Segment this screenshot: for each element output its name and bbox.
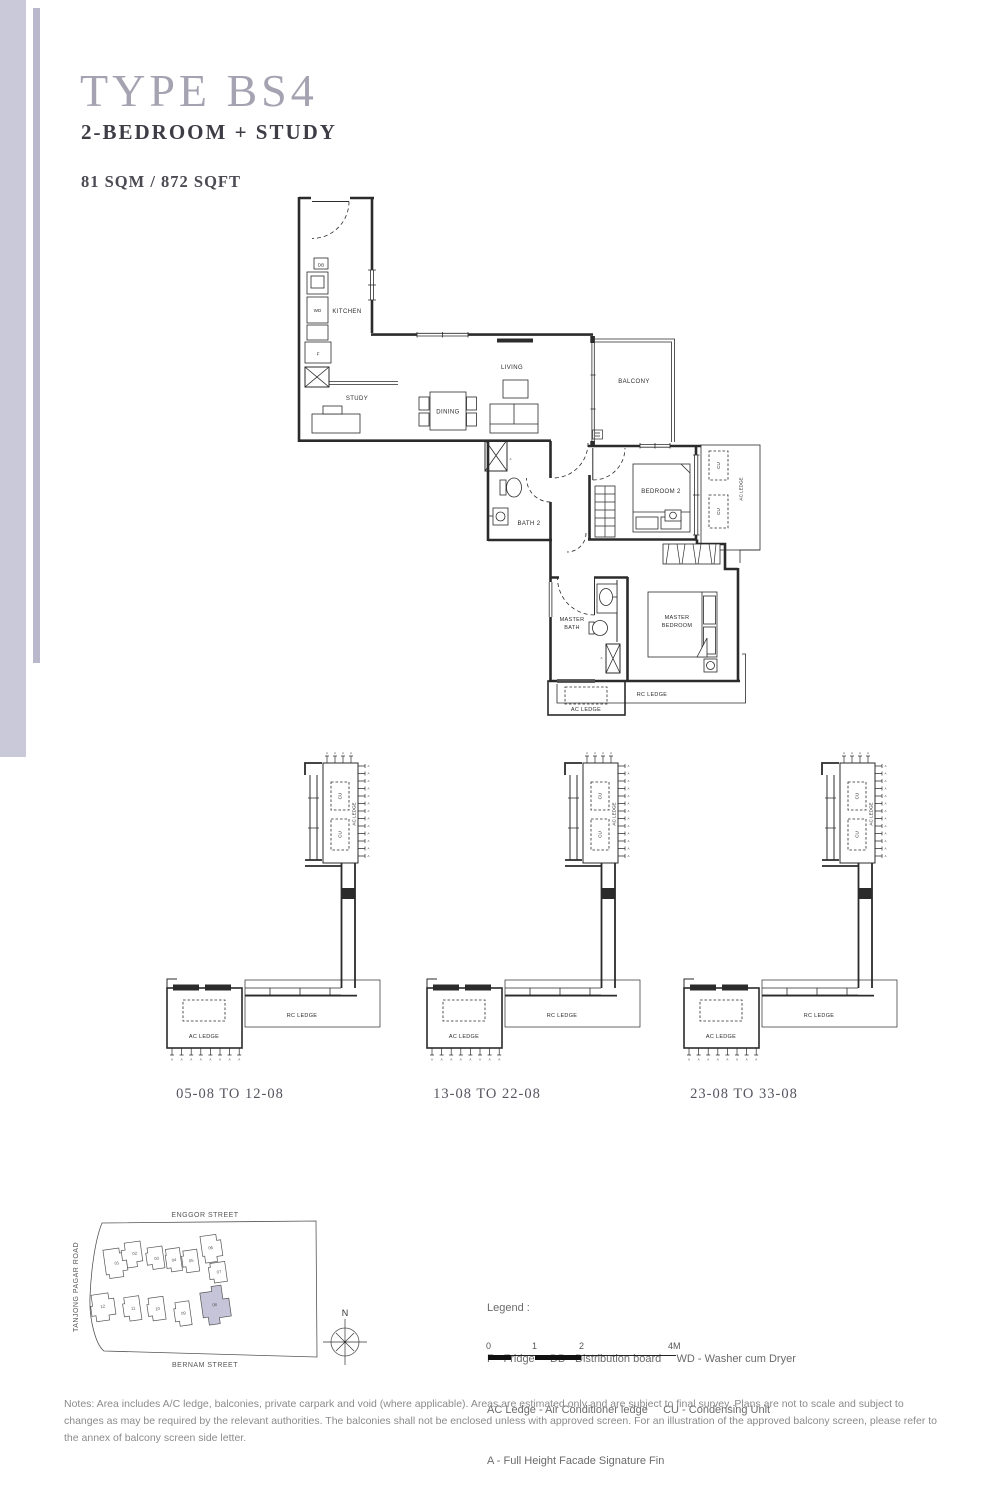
room-label-living: LIVING bbox=[501, 365, 523, 371]
stack-caption-2: 13-08 TO 22-08 bbox=[407, 1086, 567, 1103]
cu-label: CU bbox=[338, 793, 343, 800]
room-label-bath2: BATH 2 bbox=[518, 521, 541, 527]
scale-tick: 1 bbox=[532, 1341, 537, 1351]
scale-tick: 0 bbox=[486, 1341, 491, 1351]
room-label-balcony: BALCONY bbox=[618, 379, 649, 385]
shaft-icon bbox=[305, 367, 329, 387]
toilet-icon bbox=[500, 478, 522, 497]
master-bedroom-furniture bbox=[648, 544, 720, 672]
rc-ledge-label: RC LEDGE bbox=[637, 692, 668, 698]
room-label-study: STUDY bbox=[346, 396, 368, 402]
scale-tick: 4M bbox=[668, 1341, 681, 1351]
cu-label: CU bbox=[716, 508, 721, 515]
db-label: DB bbox=[318, 263, 324, 268]
compass-icon: N bbox=[323, 1308, 367, 1365]
kitchen-appliances bbox=[305, 258, 398, 387]
coffee-table-icon bbox=[503, 380, 528, 398]
stack-caption-1: 05-08 TO 12-08 bbox=[150, 1086, 310, 1103]
room-label-kitchen: KITCHEN bbox=[332, 309, 361, 315]
stack-caption-3: 23-08 TO 33-08 bbox=[664, 1086, 824, 1103]
site-map: 01 02 03 04 05 06 07 12 11 10 09 08 ENGG… bbox=[60, 1195, 380, 1380]
wardrobe-icon bbox=[595, 486, 615, 537]
ac-ledge-label: AC LEDGE bbox=[352, 802, 357, 825]
scale-bar-line bbox=[488, 1355, 676, 1361]
room-label-master-bath-1: MASTER bbox=[560, 617, 585, 623]
stack-diagram-1: A A A CU CU AC LEDGE bbox=[165, 748, 380, 1066]
side-table-icon bbox=[665, 510, 681, 521]
rc-ledge-label: RC LEDGE bbox=[287, 1013, 318, 1019]
wd-label: WD bbox=[314, 308, 322, 313]
unit-type-title: TYPE BS4 bbox=[80, 64, 318, 117]
bath2-fixtures: A bbox=[485, 440, 522, 525]
shaft-icon bbox=[606, 644, 620, 673]
room-label-master-bedroom-1: MASTER bbox=[665, 615, 690, 621]
fin-marker-label: A bbox=[600, 656, 602, 660]
ac-ledge-label: AC LEDGE bbox=[189, 1034, 219, 1040]
building-footprints: 01 02 03 04 05 06 07 12 11 10 09 08 bbox=[83, 1230, 234, 1341]
room-label-master-bedroom-2: BEDROOM bbox=[662, 623, 693, 629]
scale-bar-segment bbox=[488, 1355, 511, 1360]
cu-label: CU bbox=[716, 462, 721, 469]
study-desk-icon bbox=[312, 406, 360, 433]
floor-plan: A CU CU AC LEDGE bbox=[295, 192, 765, 737]
basin-icon bbox=[489, 508, 508, 525]
unit-layout-subtitle: 2-BEDROOM + STUDY bbox=[81, 120, 337, 145]
scale-bar-segment bbox=[535, 1355, 582, 1360]
legend: Legend : F - Fridge DB - Distribution bo… bbox=[487, 1266, 796, 1488]
cu-label: CU bbox=[338, 831, 343, 838]
stack-diagram-3 bbox=[682, 748, 897, 1066]
left-accent-bar-thin bbox=[33, 8, 40, 663]
notes-text: Notes: Area includes A/C ledge, balconie… bbox=[64, 1396, 942, 1446]
ac-ledge-label: AC LEDGE bbox=[739, 477, 744, 500]
wardrobe-icon bbox=[663, 544, 720, 564]
floorplan-page: TYPE BS4 2-BEDROOM + STUDY 81 SQM / 872 … bbox=[0, 0, 1000, 1488]
sofa-icon bbox=[490, 404, 538, 433]
room-label-bedroom2: BEDROOM 2 bbox=[641, 489, 681, 495]
fridge-label: F bbox=[317, 352, 320, 357]
legend-row: A - Full Height Facade Signature Fin bbox=[487, 1453, 796, 1470]
master-bath-fixtures: A bbox=[589, 584, 620, 673]
compass-north-label: N bbox=[342, 1308, 349, 1318]
room-label-dining: DINING bbox=[436, 410, 459, 416]
side-table-icon bbox=[704, 659, 717, 672]
room-label-master-bath-2: BATH bbox=[564, 625, 579, 631]
legend-heading: Legend : bbox=[487, 1300, 796, 1317]
street-label-enggor: ENGGOR STREET bbox=[171, 1212, 238, 1219]
street-label-bernam: BERNAM STREET bbox=[172, 1362, 238, 1369]
street-label-tanjong-pagar: TANJONG PAGAR ROAD bbox=[73, 1242, 80, 1332]
unit-area-text: 81 SQM / 872 SQFT bbox=[81, 172, 241, 192]
bedroom2-furniture bbox=[595, 464, 690, 537]
balcony-railing bbox=[590, 336, 674, 447]
stack-diagram-2 bbox=[425, 748, 640, 1066]
scale-bar: 0 1 2 4M bbox=[488, 1341, 688, 1363]
vanity-icon bbox=[597, 584, 617, 613]
fin-marker-label: A bbox=[509, 457, 511, 461]
left-accent-bar bbox=[0, 0, 26, 757]
ac-ledge-label: AC LEDGE bbox=[571, 707, 601, 713]
toilet-icon bbox=[589, 621, 608, 636]
bed-icon bbox=[633, 464, 690, 532]
scale-tick: 2 bbox=[579, 1341, 584, 1351]
